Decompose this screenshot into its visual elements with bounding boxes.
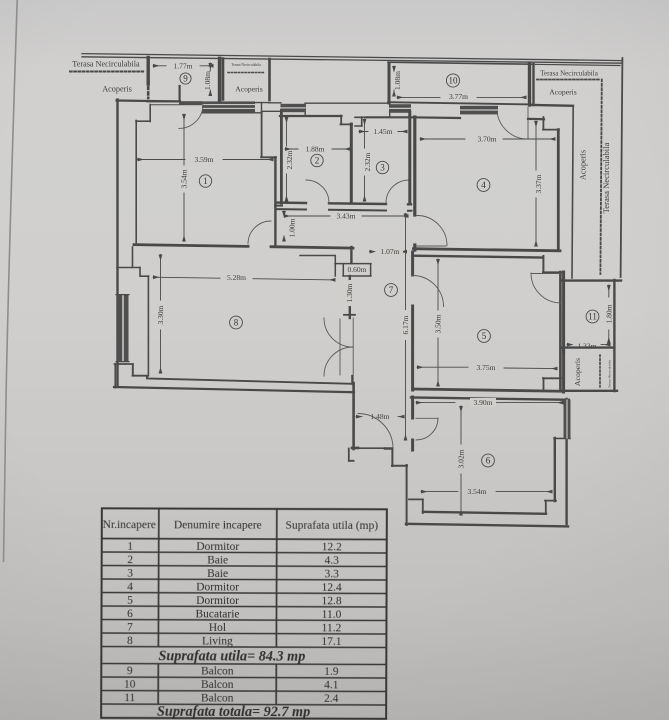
svg-text:1: 1 bbox=[203, 176, 208, 186]
svg-text:3.30m: 3.30m bbox=[156, 305, 165, 324]
svg-text:10: 10 bbox=[449, 76, 459, 86]
svg-text:1.77m: 1.77m bbox=[174, 61, 193, 70]
svg-text:Acoperis: Acoperis bbox=[102, 85, 132, 94]
svg-text:1.88m: 1.88m bbox=[306, 145, 325, 154]
svg-text:3.77m: 3.77m bbox=[449, 92, 468, 101]
svg-text:Nr.incapere: Nr.incapere bbox=[103, 519, 156, 531]
svg-text:Suprafata utila= 84.3 mp: Suprafata utila= 84.3 mp bbox=[158, 648, 305, 665]
svg-text:Terasa Necirculabila: Terasa Necirculabila bbox=[72, 60, 140, 69]
svg-text:Suprafata totala= 92.7 mp: Suprafata totala= 92.7 mp bbox=[157, 704, 310, 720]
svg-text:Terasa Necirculabila: Terasa Necirculabila bbox=[540, 70, 599, 78]
svg-text:1.80m: 1.80m bbox=[605, 304, 614, 323]
svg-text:9: 9 bbox=[183, 74, 188, 84]
svg-text:0.60m: 0.60m bbox=[348, 265, 367, 274]
svg-text:Acoperis: Acoperis bbox=[549, 88, 576, 97]
svg-text:8: 8 bbox=[234, 318, 239, 328]
svg-text:1.33m: 1.33m bbox=[578, 342, 597, 351]
svg-text:11: 11 bbox=[588, 312, 597, 322]
svg-text:3.54m: 3.54m bbox=[468, 487, 487, 496]
svg-text:2.32m: 2.32m bbox=[285, 150, 294, 169]
svg-text:2: 2 bbox=[315, 156, 320, 166]
svg-text:1.08m: 1.08m bbox=[203, 71, 212, 90]
svg-text:2.32m: 2.32m bbox=[363, 152, 372, 171]
svg-text:Suprafata utila (mp): Suprafata utila (mp) bbox=[285, 520, 378, 532]
svg-text:3.50m: 3.50m bbox=[434, 314, 443, 333]
svg-text:4: 4 bbox=[481, 180, 486, 190]
svg-text:Denumire incapere: Denumire incapere bbox=[174, 519, 262, 531]
svg-text:1.45m: 1.45m bbox=[374, 127, 393, 136]
svg-text:1.00m: 1.00m bbox=[288, 218, 297, 237]
svg-text:Terasa Necirculabila: Terasa Necirculabila bbox=[601, 142, 611, 213]
svg-text:7: 7 bbox=[389, 285, 394, 295]
svg-text:1.08m: 1.08m bbox=[393, 71, 402, 90]
svg-text:3.75m: 3.75m bbox=[477, 363, 496, 372]
svg-text:Terasa Necirculabila: Terasa Necirculabila bbox=[608, 360, 612, 388]
svg-text:3.59m: 3.59m bbox=[195, 155, 214, 164]
svg-text:3: 3 bbox=[380, 163, 385, 173]
svg-text:1.30m: 1.30m bbox=[345, 283, 354, 302]
svg-text:Acoperis: Acoperis bbox=[573, 358, 582, 386]
svg-text:Acoperis: Acoperis bbox=[579, 150, 588, 180]
svg-text:6: 6 bbox=[486, 456, 491, 466]
svg-text:3.90m: 3.90m bbox=[474, 398, 493, 407]
svg-text:1.07m: 1.07m bbox=[381, 247, 400, 256]
svg-text:6.17m: 6.17m bbox=[401, 315, 410, 334]
svg-text:5: 5 bbox=[482, 331, 487, 341]
svg-text:Terasa Necirculabila: Terasa Necirculabila bbox=[231, 63, 261, 67]
svg-text:3.70m: 3.70m bbox=[478, 135, 497, 144]
svg-text:1.48m: 1.48m bbox=[371, 412, 390, 421]
svg-text:3.54m: 3.54m bbox=[180, 169, 189, 188]
svg-text:3.43m: 3.43m bbox=[337, 212, 356, 221]
svg-text:3.02m: 3.02m bbox=[457, 449, 466, 468]
svg-text:5.28m: 5.28m bbox=[227, 273, 246, 282]
svg-text:Acoperis: Acoperis bbox=[235, 85, 262, 94]
svg-text:3.37m: 3.37m bbox=[534, 174, 543, 193]
